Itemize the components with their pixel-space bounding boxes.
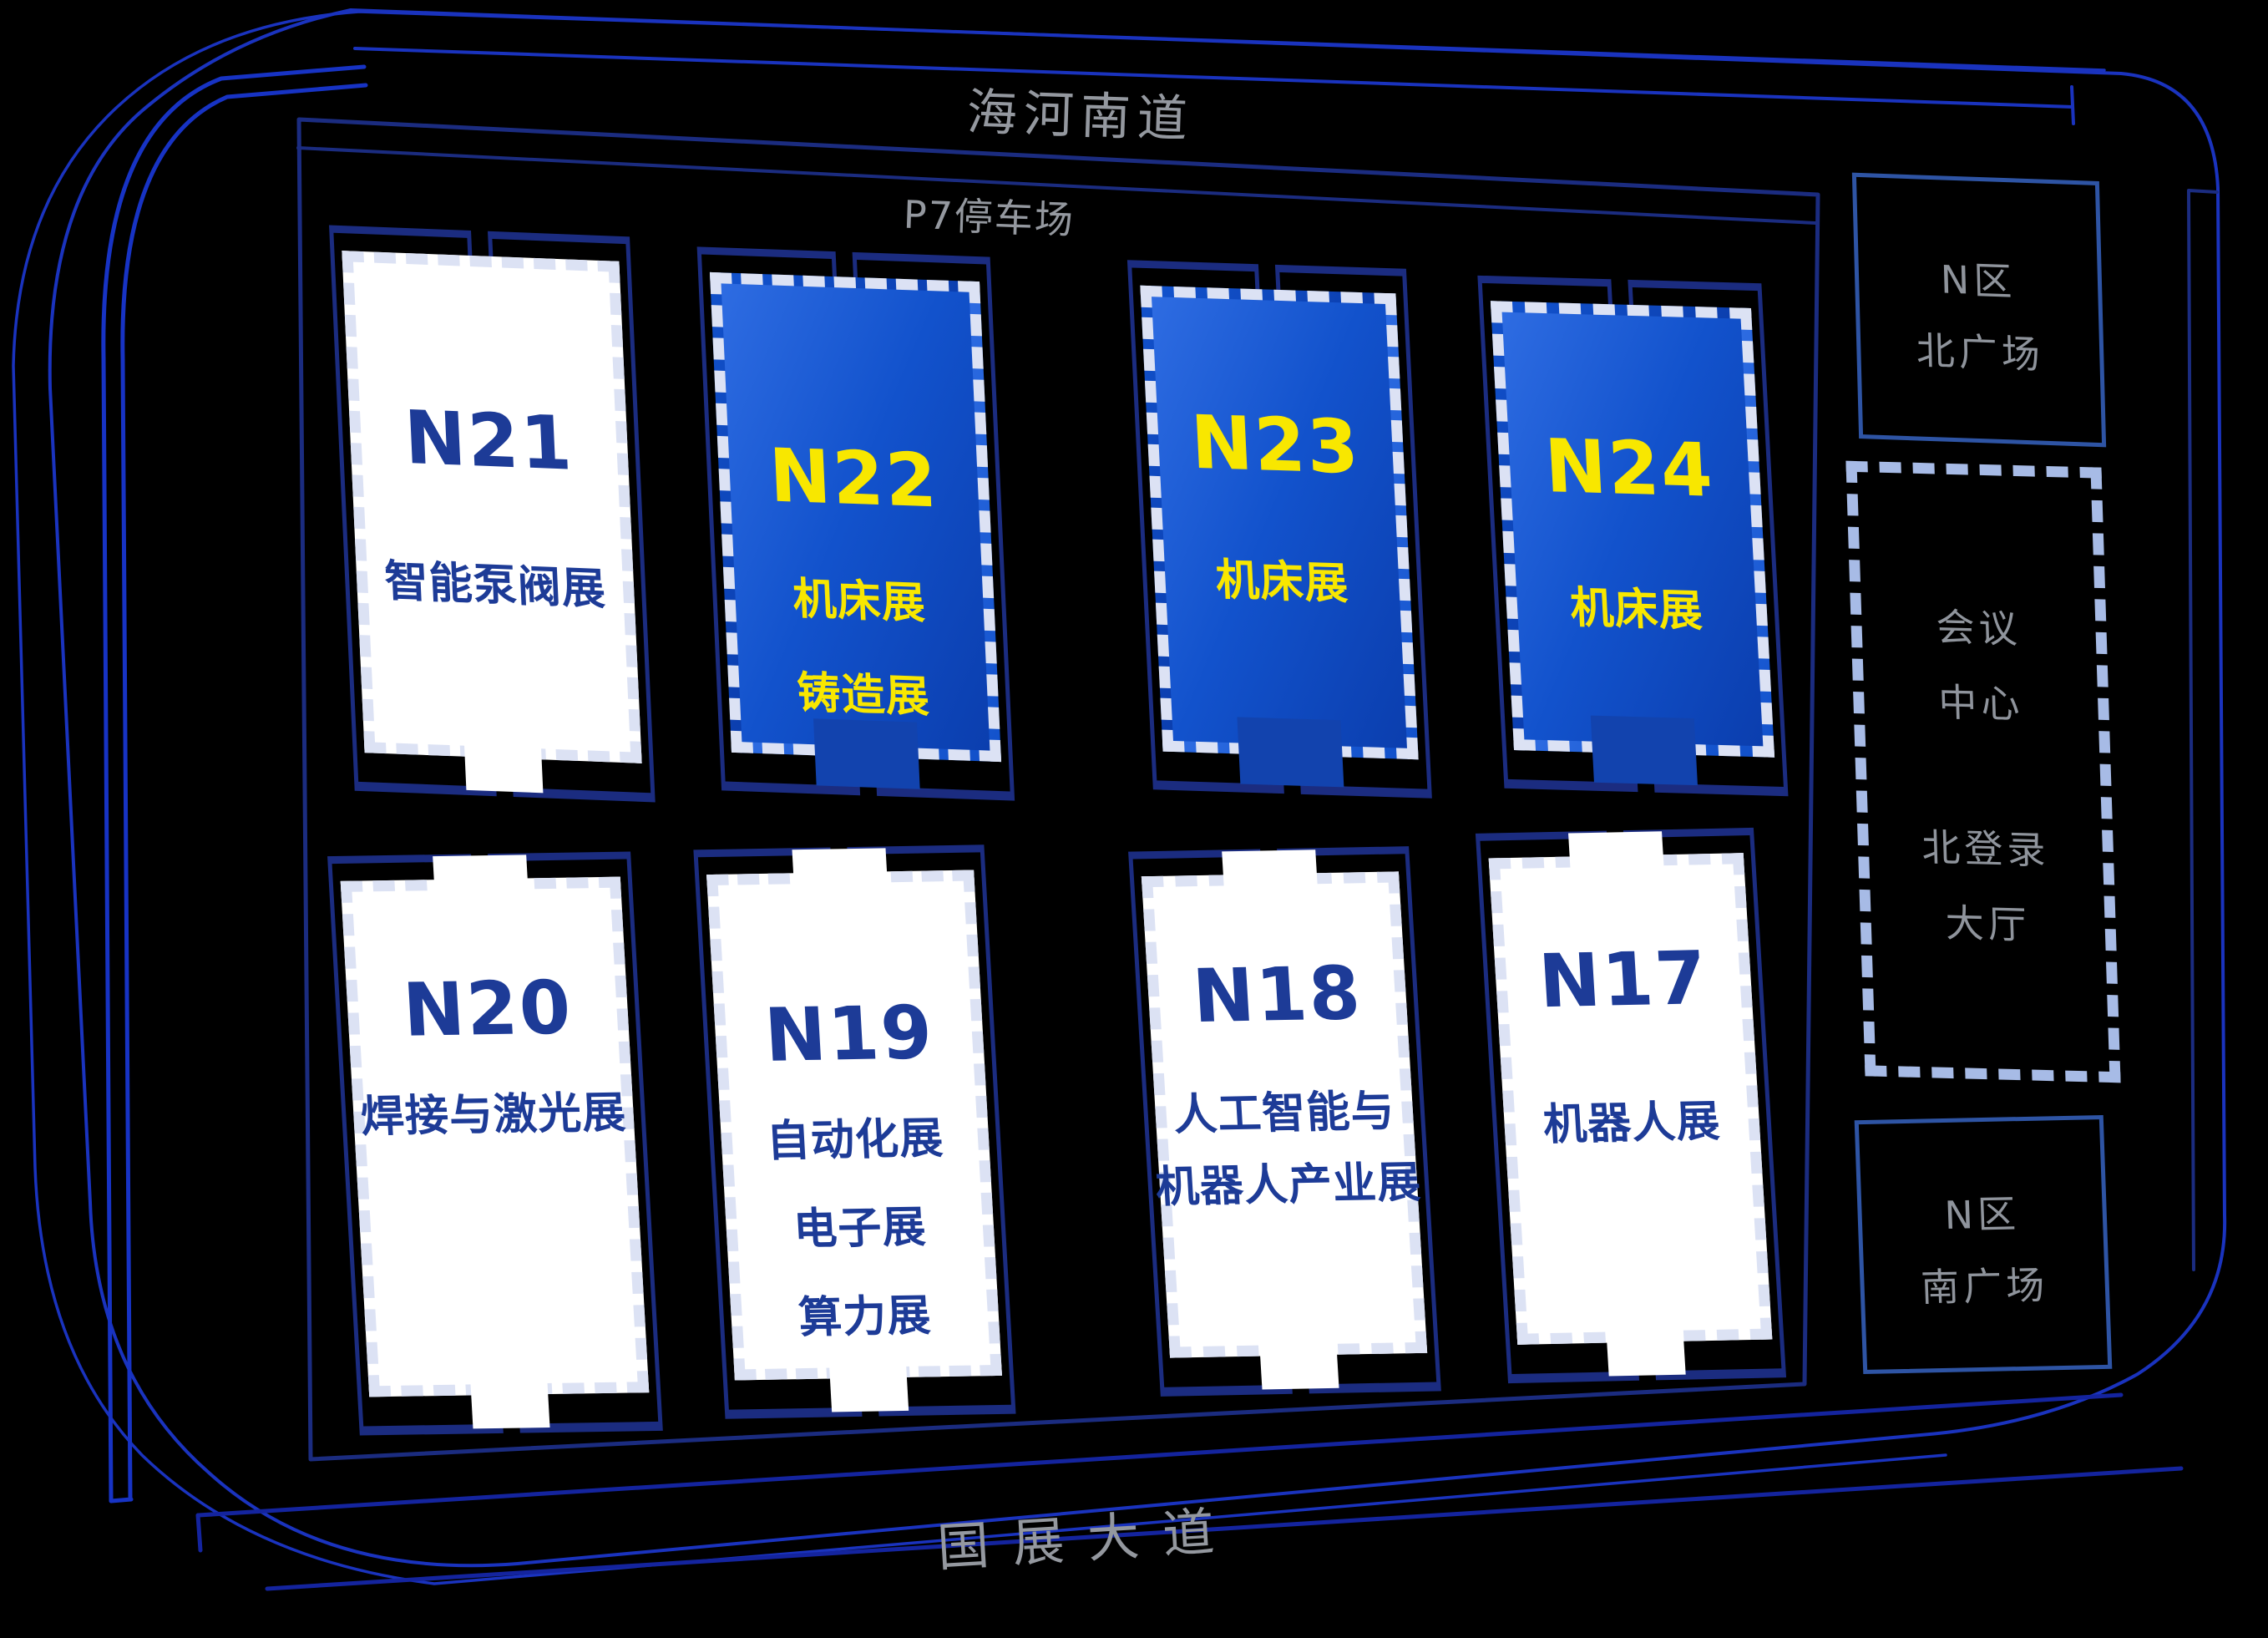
- area-label: 北广场: [1916, 331, 2044, 373]
- right-frame-line: [2189, 190, 2217, 1270]
- hall-entrance-tab: [813, 718, 920, 789]
- hall-n20[interactable]: N20 焊接与激光展: [341, 877, 650, 1397]
- hall-show-name: 铸造展: [796, 668, 931, 723]
- area-label: 南广场: [1920, 1265, 2049, 1306]
- conference-center-area[interactable]: 会议 中心 北登录 大厅: [1845, 461, 2120, 1083]
- hall-show-name: 算力展: [797, 1291, 933, 1344]
- hall-entrance-tab: [1605, 1321, 1685, 1377]
- hall-entrance-tab-top: [1568, 831, 1664, 875]
- hall-entrance-tab: [1259, 1335, 1339, 1390]
- area-label: N区: [1940, 260, 2017, 301]
- hall-show-name: 电子展: [792, 1203, 928, 1255]
- hall-n19[interactable]: N19 自动化展 电子展 算力展: [706, 870, 1002, 1381]
- hall-entrance-tab: [1591, 716, 1698, 786]
- hall-card: N24 机床展: [1491, 301, 1774, 758]
- hall-id: N21: [402, 401, 575, 481]
- hall-show-name: 机器人展: [1542, 1098, 1723, 1151]
- hall-show-name: 人工智能与: [1172, 1087, 1397, 1141]
- hall-show-name: 自动化展: [765, 1114, 944, 1167]
- area-label: 大厅: [1945, 904, 2031, 945]
- hall-entrance-tab-top: [433, 854, 529, 898]
- hall-n21[interactable]: N21 智能泵阀展: [342, 251, 641, 763]
- hall-show-name: 机床展: [1215, 556, 1350, 611]
- hall-card: N22 机床展 铸造展: [710, 272, 1001, 762]
- hall-card: N19 自动化展 电子展 算力展: [706, 870, 1002, 1381]
- hall-card: N18 人工智能与 机器人产业展: [1142, 871, 1427, 1357]
- left-rail: [104, 67, 366, 1501]
- parking-label: P7停车场: [903, 185, 1076, 246]
- south-plaza-area[interactable]: N区 南广场: [1855, 1115, 2113, 1374]
- expo-map: 海河南道 P7停车场 国展大道 N21 智能泵阀展 N22 机床展 铸造展 N2…: [0, 0, 2268, 1638]
- hall-id: N17: [1536, 941, 1709, 1018]
- hall-n22[interactable]: N22 机床展 铸造展: [710, 272, 1001, 762]
- hall-n17[interactable]: N17 机器人展: [1489, 853, 1773, 1345]
- hall-n18[interactable]: N18 人工智能与 机器人产业展: [1142, 871, 1427, 1357]
- hall-entrance-tab: [464, 737, 544, 794]
- hall-id: N20: [401, 971, 574, 1047]
- hall-id: N18: [1191, 956, 1364, 1033]
- hall-id: N19: [762, 996, 935, 1072]
- road-label-north: 海河南道: [966, 72, 1196, 152]
- hall-card: N20 焊接与激光展: [341, 877, 650, 1397]
- area-label: N区: [1944, 1194, 2021, 1235]
- hall-n23[interactable]: N23 机床展: [1140, 286, 1418, 759]
- hall-id: N22: [767, 439, 939, 518]
- hall-id: N23: [1189, 406, 1361, 484]
- hall-entrance-tab-top: [1222, 849, 1318, 893]
- hall-card: N23 机床展: [1140, 286, 1418, 759]
- area-label: 中心: [1938, 683, 2024, 724]
- hall-entrance-tab: [1237, 717, 1344, 787]
- hall-entrance-tab-top: [792, 848, 888, 891]
- hall-n24[interactable]: N24 机床展: [1491, 301, 1774, 758]
- frame-outline-back: [13, 12, 2104, 1584]
- hall-show-name: 机床展: [792, 575, 927, 629]
- hall-card: N17 机器人展: [1489, 853, 1773, 1345]
- hall-show-name: 机器人产业展: [1154, 1159, 1423, 1214]
- hall-entrance-tab: [829, 1357, 909, 1412]
- north-plaza-area[interactable]: N区 北广场: [1852, 173, 2106, 448]
- hall-show-name: 机床展: [1569, 584, 1704, 637]
- area-label: 会议: [1936, 608, 2022, 649]
- hall-show-name: 智能泵阀展: [383, 557, 607, 616]
- hall-entrance-tab: [469, 1374, 549, 1428]
- hall-show-name: 焊接与激光展: [359, 1089, 627, 1144]
- hall-card: N21 智能泵阀展: [342, 251, 641, 763]
- area-label: 北登录: [1921, 828, 2050, 870]
- hall-id: N24: [1543, 429, 1716, 508]
